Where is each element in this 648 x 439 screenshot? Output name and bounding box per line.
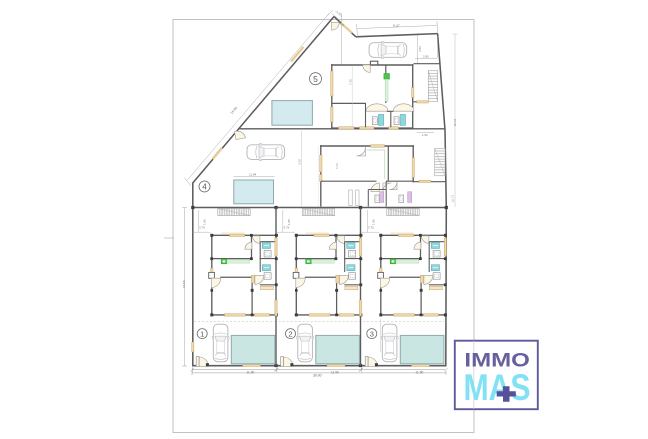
svg-text:11.84: 11.84	[249, 173, 257, 177]
svg-text:30.00: 30.00	[313, 373, 322, 377]
svg-text:4.20: 4.20	[298, 159, 302, 165]
svg-text:9.47: 9.47	[393, 24, 400, 28]
svg-text:MAS: MAS	[464, 367, 531, 408]
svg-text:2.80: 2.80	[423, 55, 429, 59]
svg-text:7.30: 7.30	[349, 79, 353, 85]
svg-text:6.30: 6.30	[335, 163, 339, 169]
svg-text:26.05: 26.05	[453, 119, 457, 127]
svg-text:1.52: 1.52	[422, 133, 428, 137]
svg-text:12.75: 12.75	[450, 195, 454, 203]
svg-text:3: 3	[370, 329, 374, 338]
svg-text:15.80: 15.80	[182, 280, 186, 288]
svg-text:3.53: 3.53	[418, 46, 422, 52]
svg-text:16.80: 16.80	[230, 106, 239, 115]
svg-text:5: 5	[313, 74, 318, 84]
svg-text:2: 2	[288, 329, 292, 338]
svg-text:4: 4	[202, 183, 207, 192]
svg-text:1: 1	[200, 329, 204, 338]
